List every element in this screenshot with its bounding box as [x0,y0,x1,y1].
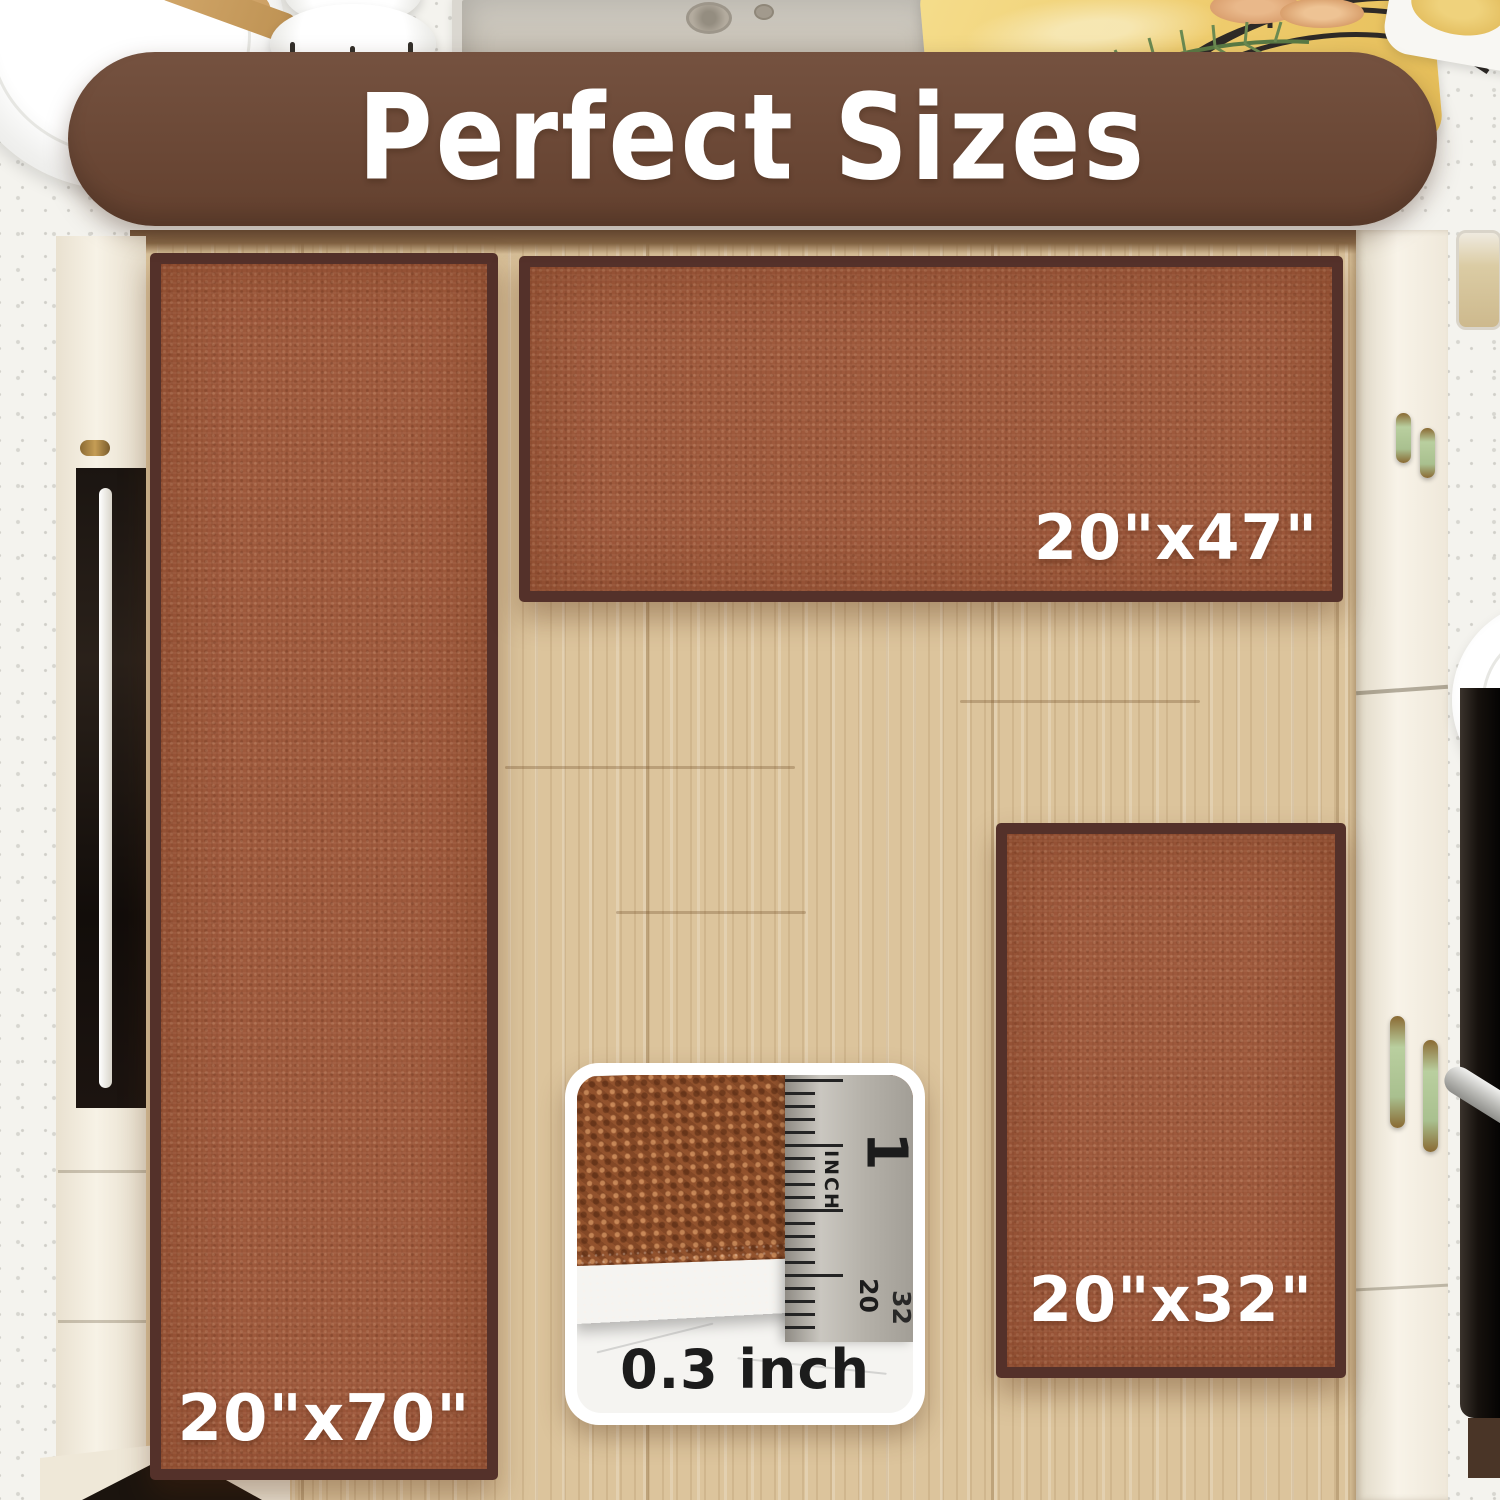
thickness-photo: 1 INCH 20 32 0.3 inch [577,1075,913,1413]
rug-20x32: 20"x32" [996,823,1346,1378]
black-appliance [1460,688,1500,1418]
cabinet-seam [58,1320,146,1323]
floor-plank-joint [505,766,795,769]
ruler-number-1: 1 [858,1132,913,1171]
cabinet-seam [58,1170,146,1173]
ruler-mark-32: 32 [889,1290,913,1325]
floor-plank-joint [960,700,1200,703]
faucet-hole [754,4,774,20]
rug-size-label: 20"x32" [1007,1269,1335,1331]
sink-drain-icon [686,2,732,34]
rug-size-label: 20"x47" [1034,507,1318,569]
rug-size-label: 20"x70" [161,1387,487,1451]
steel-ruler: 1 INCH 20 32 [785,1075,913,1342]
food-blob [1407,0,1500,43]
thickness-inset: 1 INCH 20 32 0.3 inch [565,1063,925,1425]
ruler-unit-label: INCH [821,1150,840,1211]
thickness-value: 0.3 inch [577,1338,913,1401]
headline-banner: Perfect Sizes [68,52,1437,226]
glass-jar [1456,230,1500,330]
cabinet-handle [1396,413,1411,463]
headline-text: Perfect Sizes [358,80,1147,198]
cabinet-handle [1423,1040,1438,1152]
rug-20x47: 20"x47" [519,256,1343,602]
oven-handle [99,488,112,1088]
floor-edge-shadow [1348,230,1356,1500]
cabinet-knob [80,440,110,456]
kitchen-scene: 20"x70" 20"x47" 20"x32" 1 INCH 20 32 0.3… [0,0,1500,1500]
appliance-base [1468,1418,1500,1478]
floor-plank-joint [616,911,806,914]
ruler-mark-20: 20 [856,1278,881,1313]
cabinet-handle [1420,428,1435,478]
cabinet-handle [1390,1016,1405,1128]
rug-20x70: 20"x70" [150,253,498,1480]
cabinet-toe-kick-shadow [130,230,1356,254]
